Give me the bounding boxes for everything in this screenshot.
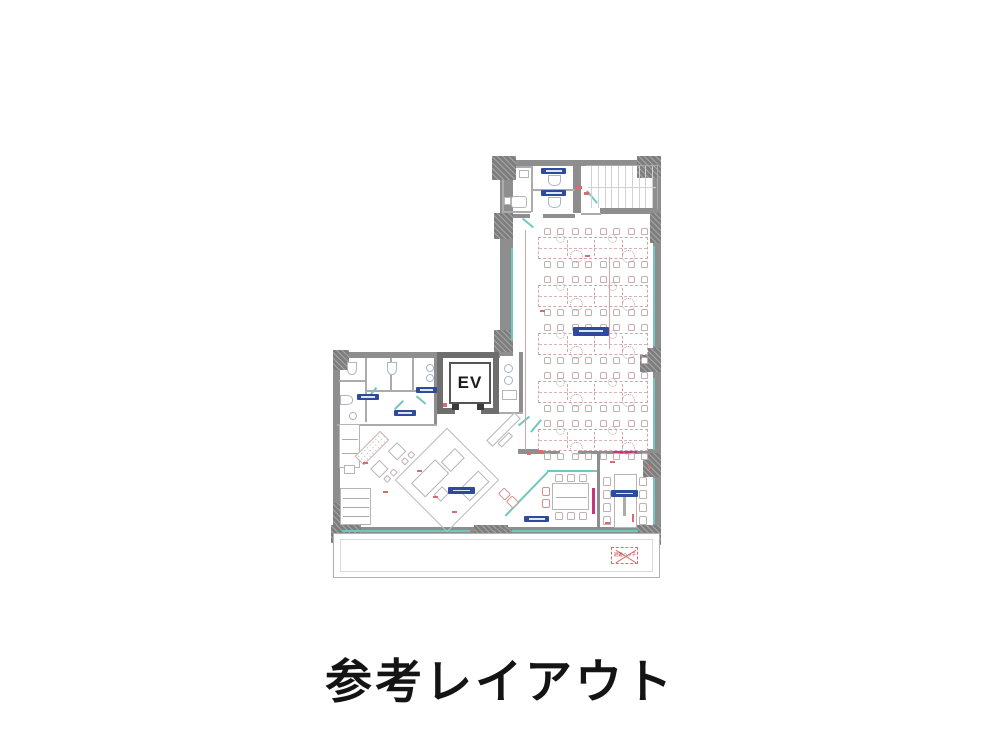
partition-wall bbox=[412, 358, 414, 392]
cafe-chair bbox=[401, 457, 409, 465]
wall-segment bbox=[519, 352, 523, 414]
office-chair bbox=[641, 453, 648, 460]
office-chair bbox=[544, 372, 551, 379]
elevator-door-stub bbox=[477, 403, 484, 410]
elevator-cab: EV bbox=[449, 362, 491, 404]
office-chair bbox=[600, 228, 607, 235]
door-leaf bbox=[394, 400, 404, 410]
whiteboard-strip bbox=[592, 488, 595, 514]
office-chair bbox=[572, 420, 579, 427]
office-chair bbox=[572, 372, 579, 379]
office-chair bbox=[544, 228, 551, 235]
elevator-shaft-wall bbox=[437, 352, 499, 358]
cafe-chair bbox=[407, 451, 415, 459]
elevator-door-stub bbox=[452, 403, 459, 410]
room-label-chip-utility-room bbox=[394, 410, 416, 416]
task-chair bbox=[622, 442, 635, 455]
structural-column bbox=[650, 213, 661, 243]
dimension-mark bbox=[433, 496, 438, 498]
desk-centerline bbox=[539, 392, 647, 393]
dimension-mark bbox=[585, 255, 590, 257]
desk-centerline bbox=[539, 440, 647, 441]
task-chair bbox=[570, 250, 583, 263]
dimension-mark bbox=[452, 511, 457, 513]
task-chair bbox=[570, 298, 583, 311]
wall-segment bbox=[513, 214, 530, 218]
meeting-chair bbox=[542, 499, 550, 508]
meeting-chair bbox=[603, 503, 611, 512]
task-chair bbox=[570, 394, 583, 407]
cabinet-shelf-line bbox=[343, 498, 369, 499]
task-chair bbox=[556, 234, 565, 243]
office-chair bbox=[641, 357, 648, 364]
wall-segment bbox=[597, 452, 600, 530]
office-chair bbox=[544, 261, 551, 268]
office-chair bbox=[628, 228, 635, 235]
meeting-chair bbox=[639, 503, 647, 512]
office-chair bbox=[544, 405, 551, 412]
cafe-chair bbox=[383, 475, 391, 483]
office-chair bbox=[613, 261, 620, 268]
balcony-inner-line bbox=[340, 539, 653, 572]
office-chair bbox=[544, 309, 551, 316]
desk-divider bbox=[567, 336, 568, 352]
cabinet-tall bbox=[339, 424, 360, 468]
meeting-chair bbox=[639, 477, 647, 486]
desk-divider bbox=[567, 288, 568, 304]
office-chair bbox=[557, 261, 564, 268]
office-chair bbox=[641, 372, 648, 379]
cabinet-shelf-line bbox=[343, 516, 369, 517]
office-chair bbox=[641, 276, 648, 283]
desk-divider bbox=[567, 384, 568, 400]
office-chair bbox=[557, 405, 564, 412]
office-chair bbox=[600, 357, 607, 364]
desk-divider bbox=[594, 432, 595, 448]
task-chair bbox=[556, 378, 565, 387]
room-label-chip-wc-stall-north-2 bbox=[541, 190, 566, 196]
window-glass bbox=[653, 378, 655, 450]
meeting-chair bbox=[555, 474, 563, 482]
structural-column bbox=[492, 156, 516, 180]
sink-basin bbox=[504, 364, 513, 373]
room-label-chip-wc-west bbox=[416, 387, 437, 393]
meeting-chair bbox=[603, 490, 611, 499]
office-chair bbox=[628, 276, 635, 283]
dimension-mark bbox=[538, 450, 543, 454]
desk-divider bbox=[594, 336, 595, 352]
toilet-west-1 bbox=[347, 362, 357, 375]
meeting-chair bbox=[542, 487, 550, 496]
cabinet-shelf-line bbox=[342, 439, 358, 440]
office-chair bbox=[600, 261, 607, 268]
dimension-mark bbox=[527, 452, 531, 455]
office-chair bbox=[628, 372, 635, 379]
room-label-chip-office-area bbox=[573, 327, 609, 336]
room-label-chip-lounge bbox=[448, 487, 475, 494]
desk-divider bbox=[567, 432, 568, 448]
meeting-chair bbox=[567, 474, 575, 482]
window-glass bbox=[342, 530, 470, 532]
office-chair bbox=[585, 420, 592, 427]
desk-centerline bbox=[539, 344, 647, 345]
office-chair bbox=[572, 276, 579, 283]
office-chair bbox=[544, 420, 551, 427]
sink-basin bbox=[426, 374, 434, 382]
coffee-table bbox=[434, 486, 450, 502]
dimension-mark bbox=[540, 310, 545, 312]
meeting-chair bbox=[579, 474, 587, 482]
dimension-mark bbox=[648, 465, 650, 470]
door-leaf bbox=[416, 395, 426, 404]
office-chair bbox=[585, 276, 592, 283]
office-chair bbox=[613, 357, 620, 364]
office-chair bbox=[544, 276, 551, 283]
task-chair bbox=[556, 330, 565, 339]
office-chair bbox=[628, 324, 635, 331]
dimension-line bbox=[609, 257, 610, 349]
window-glass bbox=[653, 478, 655, 524]
office-chair bbox=[641, 228, 648, 235]
stair-outline-right bbox=[657, 165, 658, 209]
desk-divider bbox=[594, 384, 595, 400]
office-chair bbox=[600, 276, 607, 283]
cabinet-shelf-line bbox=[343, 507, 369, 508]
desk-divider bbox=[594, 288, 595, 304]
elevator-shaft-wall bbox=[493, 352, 499, 408]
toilet-north-1 bbox=[548, 175, 561, 186]
meeting-chair bbox=[567, 512, 575, 520]
elevator-label: EV bbox=[458, 373, 483, 393]
partition-wall bbox=[339, 380, 365, 382]
dimension-mark bbox=[417, 470, 422, 472]
desk-centerline bbox=[539, 296, 647, 297]
window-glass bbox=[512, 530, 638, 532]
dimension-mark bbox=[443, 403, 447, 407]
structural-column bbox=[494, 213, 513, 239]
floor-plan-drawing: EV避難ハッチ bbox=[0, 0, 1000, 750]
task-chair bbox=[622, 250, 635, 263]
dimension-mark bbox=[576, 186, 582, 189]
dimension-mark bbox=[605, 522, 610, 524]
office-chair bbox=[585, 357, 592, 364]
office-chair bbox=[585, 372, 592, 379]
task-chair bbox=[622, 346, 635, 359]
task-chair bbox=[608, 234, 617, 243]
meeting-chair bbox=[555, 512, 563, 520]
office-chair bbox=[544, 324, 551, 331]
desk-divider bbox=[567, 240, 568, 256]
task-chair bbox=[608, 378, 617, 387]
meeting-chair bbox=[639, 490, 647, 499]
office-chair bbox=[585, 405, 592, 412]
dimension-mark bbox=[610, 461, 615, 463]
office-chair bbox=[641, 324, 648, 331]
meeting-chair bbox=[579, 512, 587, 520]
sink-basin bbox=[426, 364, 434, 372]
wall-segment bbox=[543, 214, 575, 218]
door-leaf bbox=[522, 218, 534, 229]
office-chair bbox=[600, 405, 607, 412]
office-chair bbox=[600, 453, 607, 460]
sink-basin bbox=[349, 412, 357, 420]
office-chair bbox=[572, 228, 579, 235]
toilet-north-2 bbox=[548, 197, 561, 208]
office-chair bbox=[613, 405, 620, 412]
stair-outline-top bbox=[586, 165, 658, 166]
office-chair bbox=[585, 453, 592, 460]
room-label-chip-wc-stall-north-1 bbox=[541, 168, 566, 174]
toilet-west-2 bbox=[387, 362, 397, 375]
window-glass bbox=[511, 248, 513, 340]
janitor-sink bbox=[519, 170, 529, 178]
meeting-chair bbox=[639, 516, 647, 525]
table-centerline bbox=[556, 497, 587, 498]
office-chair bbox=[613, 309, 620, 316]
office-chair bbox=[600, 372, 607, 379]
desk-divider bbox=[594, 240, 595, 256]
office-chair bbox=[600, 420, 607, 427]
dimension-mark bbox=[632, 514, 634, 522]
kitchen-counter bbox=[502, 390, 517, 400]
evacuation-hatch-label: 避難ハッチ bbox=[612, 552, 638, 560]
task-chair bbox=[570, 346, 583, 359]
office-chair bbox=[557, 357, 564, 364]
office-chair bbox=[544, 453, 551, 460]
office-chair bbox=[557, 309, 564, 316]
dimension-line bbox=[525, 230, 526, 450]
room-label-chip-powder-room bbox=[357, 394, 379, 400]
janitor-basin bbox=[511, 196, 527, 208]
room-label-chip-meeting-room-long bbox=[611, 490, 638, 497]
office-chair bbox=[585, 309, 592, 316]
room-label-chip-meeting-room-small bbox=[524, 516, 549, 522]
desk-centerline bbox=[539, 248, 647, 249]
office-chair bbox=[585, 261, 592, 268]
office-chair bbox=[600, 309, 607, 316]
stair-landing-line bbox=[588, 187, 656, 188]
office-chair bbox=[613, 453, 620, 460]
office-chair bbox=[628, 420, 635, 427]
task-chair bbox=[556, 282, 565, 291]
office-chair bbox=[641, 405, 648, 412]
task-chair bbox=[622, 298, 635, 311]
cafe-chair bbox=[389, 468, 397, 476]
floor-plan-page: EV避難ハッチ 参考レイアウト bbox=[0, 0, 1000, 750]
task-chair bbox=[622, 394, 635, 407]
window-glass bbox=[547, 470, 597, 472]
dimension-mark bbox=[383, 491, 388, 493]
office-chair bbox=[641, 309, 648, 316]
toilet-west-3 bbox=[340, 395, 353, 405]
office-chair bbox=[544, 357, 551, 364]
office-chair bbox=[585, 228, 592, 235]
cable-slot bbox=[623, 496, 626, 516]
dimension-mark bbox=[584, 192, 589, 195]
task-chair bbox=[570, 442, 583, 455]
office-chair bbox=[641, 261, 648, 268]
dimension-mark bbox=[363, 462, 368, 464]
sink-basin bbox=[504, 376, 513, 385]
cabinet-box bbox=[344, 465, 355, 474]
task-chair bbox=[608, 426, 617, 435]
window-glass bbox=[653, 246, 655, 346]
reception-bench-group bbox=[486, 412, 526, 452]
janitor-box bbox=[504, 197, 511, 205]
page-title: 参考レイアウト bbox=[0, 643, 1000, 712]
meeting-table-small bbox=[552, 483, 589, 510]
meeting-chair bbox=[603, 477, 611, 486]
office-chair bbox=[641, 420, 648, 427]
task-chair bbox=[556, 426, 565, 435]
cabinet-low bbox=[340, 488, 371, 525]
office-chair bbox=[557, 453, 564, 460]
partition-wall bbox=[581, 213, 601, 215]
